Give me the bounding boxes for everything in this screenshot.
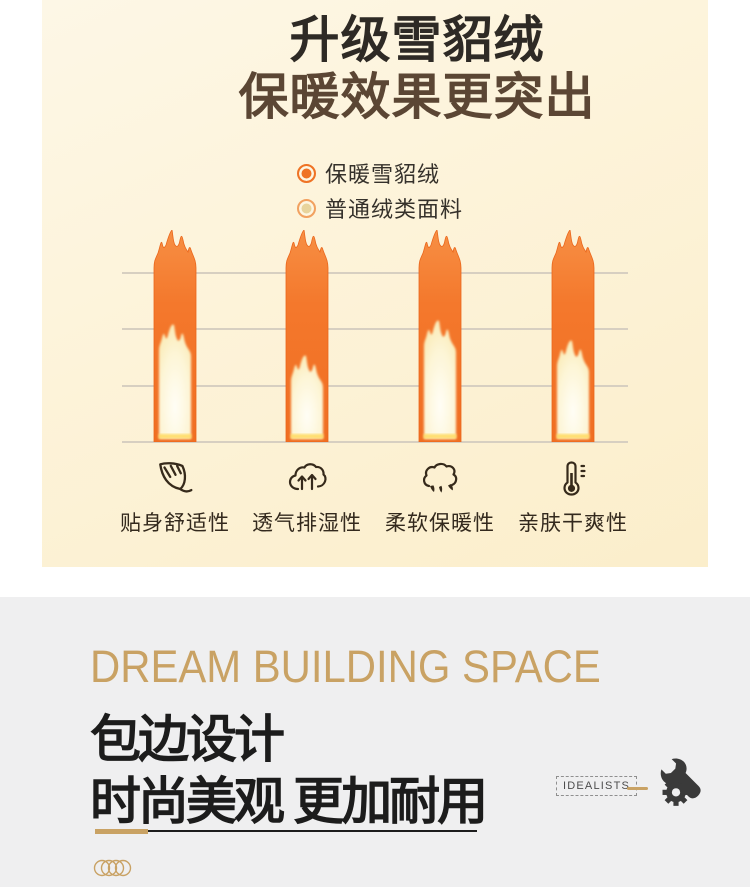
thermometer-icon bbox=[553, 460, 593, 496]
idealists-badge: IDEALISTS bbox=[556, 776, 637, 796]
feature-label: 柔软保暖性 bbox=[372, 507, 508, 537]
flame-bar bbox=[548, 230, 598, 442]
legend-item-ferret-fleece: 保暖雪貂绒 bbox=[297, 161, 463, 185]
dash-divider bbox=[627, 787, 648, 790]
hero-title-line2: 保暖效果更突出 bbox=[84, 69, 750, 126]
legend-item-ordinary-fleece: 普通绒类面料 bbox=[297, 196, 463, 220]
feature-comfort: 贴身舒适性 bbox=[107, 460, 243, 537]
design-heading-line2: 时尚美观 更加耐用 bbox=[90, 760, 485, 834]
legend-bullet-orange-icon bbox=[297, 164, 316, 183]
gear-wrench-icon bbox=[648, 754, 704, 810]
hero-title: 升级雪貂绒 保暖效果更突出 bbox=[84, 12, 750, 126]
legend-bullet-tan-icon bbox=[297, 199, 316, 218]
black-rule-line bbox=[148, 830, 477, 832]
legend-label: 普通绒类面料 bbox=[325, 192, 463, 224]
flame-bar bbox=[282, 230, 332, 442]
gold-rule-segment bbox=[95, 829, 148, 834]
overlapping-rings-icon bbox=[93, 857, 135, 879]
feature-dryness: 亲肤干爽性 bbox=[505, 460, 641, 537]
chart-legend: 保暖雪貂绒 普通绒类面料 bbox=[297, 161, 463, 231]
feature-breathability: 透气排湿性 bbox=[239, 460, 375, 537]
gear-icon bbox=[663, 779, 690, 806]
leaf-icon bbox=[155, 460, 195, 496]
flame-bar bbox=[415, 230, 465, 442]
feature-label: 透气排湿性 bbox=[239, 507, 375, 537]
feature-label: 亲肤干爽性 bbox=[505, 507, 641, 537]
product-detail-page: 升级雪貂绒 保暖效果更突出 保暖雪貂绒 普通绒类面料 贴身舒适性 bbox=[0, 0, 750, 887]
feature-soft-warmth: 柔软保暖性 bbox=[372, 460, 508, 537]
breathable-cloud-icon bbox=[287, 460, 327, 496]
eyebrow-text: DREAM BUILDING SPACE bbox=[90, 641, 601, 693]
hero-title-line1: 升级雪貂绒 bbox=[84, 12, 750, 69]
legend-label: 保暖雪貂绒 bbox=[325, 157, 440, 189]
flame-bar bbox=[150, 230, 200, 442]
cotton-icon bbox=[420, 460, 460, 496]
feature-label: 贴身舒适性 bbox=[107, 507, 243, 537]
